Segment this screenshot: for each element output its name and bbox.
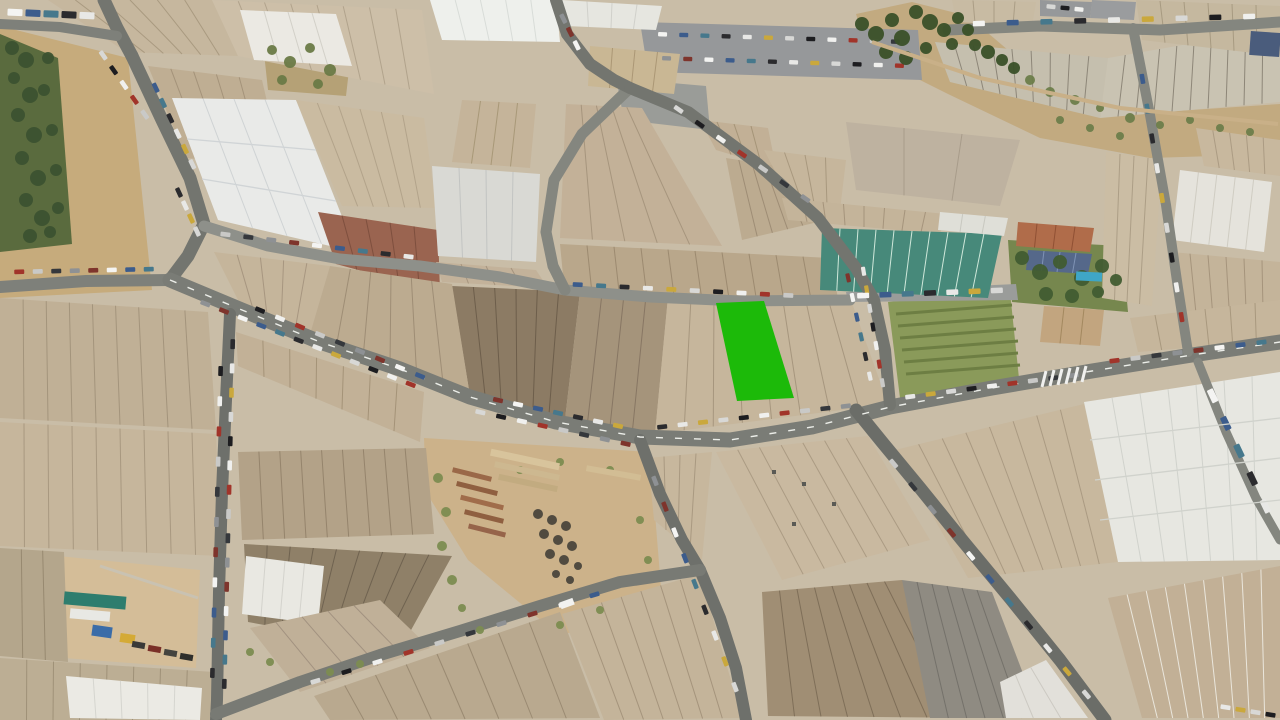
- ravine-trees: [996, 54, 1008, 66]
- house-roof: [1040, 306, 1104, 346]
- tire-piles: [552, 570, 560, 578]
- parking-row: [658, 32, 667, 37]
- parking-row: [874, 63, 883, 68]
- parked-cars: [212, 607, 217, 617]
- parked-cars: [175, 187, 183, 198]
- garden-trees: [1095, 259, 1109, 273]
- yard-weeds: [447, 575, 457, 585]
- parked-cars: [223, 630, 228, 640]
- junction-apron-ne: [1090, 0, 1136, 20]
- hillside-trees: [30, 170, 46, 186]
- yard-weeds: [437, 541, 447, 551]
- parked-cars: [226, 509, 231, 519]
- parked-cars: [51, 269, 61, 274]
- tire-piles: [539, 529, 549, 539]
- yard-weeds: [556, 621, 564, 629]
- parked-trucks: [25, 9, 40, 17]
- tire-piles: [553, 535, 563, 545]
- parked-cars: [666, 287, 676, 292]
- ravine-scrub: [1116, 132, 1124, 140]
- parked-cars: [225, 533, 230, 543]
- ravine-trees: [920, 42, 932, 54]
- parking-row: [747, 59, 756, 64]
- warehouse-roof-flat: [846, 122, 1020, 206]
- garden-trees: [1032, 264, 1048, 280]
- parked-cars: [1074, 7, 1083, 12]
- hillside-trees: [44, 226, 56, 238]
- warehouse-roof-seam: [316, 358, 317, 399]
- parked-vans: [991, 287, 1003, 293]
- yard-weeds: [441, 507, 451, 517]
- parked-cars: [217, 426, 222, 436]
- parked-trucks: [1074, 18, 1086, 24]
- scrub-bushes: [284, 56, 296, 68]
- hillside-trees: [22, 87, 38, 103]
- parked-cars: [212, 577, 217, 587]
- hillside-trees: [19, 193, 33, 207]
- parked-cars: [229, 388, 234, 398]
- solar-array: [1249, 31, 1280, 57]
- parking-row: [679, 33, 688, 38]
- parked-cars: [619, 284, 629, 289]
- parked-cars: [222, 679, 227, 689]
- parked-cars: [230, 339, 235, 349]
- parked-trucks: [1108, 17, 1120, 23]
- yard-weeds: [476, 626, 484, 634]
- parked-cars: [214, 517, 219, 527]
- parked-trucks: [1243, 14, 1255, 20]
- ravine-trees: [952, 12, 964, 24]
- ravine-trees: [969, 39, 981, 51]
- street: [948, 22, 1280, 30]
- tire-piles: [566, 576, 574, 584]
- parked-cars: [760, 292, 770, 297]
- parked-cars: [713, 289, 723, 294]
- parked-cars: [783, 293, 793, 298]
- parked-cars: [1046, 4, 1055, 9]
- parked-cars: [227, 460, 232, 470]
- roadside-weeds: [356, 660, 364, 668]
- parked-trucks: [1209, 14, 1221, 20]
- parked-trucks: [79, 12, 94, 20]
- ravine-trees: [894, 30, 910, 46]
- parked-cars: [230, 363, 235, 373]
- scrub-bushes: [313, 79, 323, 89]
- parked-cars: [107, 268, 117, 273]
- parked-vans: [857, 293, 869, 299]
- roadside-weeds: [246, 648, 254, 656]
- parked-cars: [475, 409, 486, 416]
- parking-row: [853, 62, 862, 67]
- warehouse-roof-white-grid: [1084, 372, 1280, 562]
- tire-piles: [533, 509, 543, 519]
- hillside-trees: [34, 210, 50, 226]
- parked-trucks: [1142, 16, 1154, 22]
- parked-cars: [228, 412, 233, 422]
- ravine-trees: [946, 38, 958, 50]
- hillside-trees: [50, 164, 62, 176]
- parking-row: [662, 56, 671, 61]
- parking-row: [785, 36, 794, 41]
- tire-piles: [547, 515, 557, 525]
- parked-trucks: [1040, 19, 1052, 25]
- ravine-trees: [868, 26, 884, 42]
- parked-cars: [144, 267, 154, 272]
- hillside-trees: [23, 229, 37, 243]
- parking-row: [849, 38, 858, 43]
- parcel-block-mid: [564, 292, 668, 434]
- parking-row: [700, 33, 709, 38]
- parked-cars: [228, 436, 233, 446]
- parked-vans: [968, 288, 980, 294]
- parked-cars: [14, 269, 24, 274]
- garden-trees: [1053, 255, 1067, 269]
- scrub-bushes: [305, 43, 315, 53]
- hillside-trees: [52, 202, 64, 214]
- parking-row: [827, 37, 836, 42]
- tire-piles: [567, 541, 577, 551]
- ravine-scrub: [1025, 75, 1035, 85]
- parked-cars: [218, 366, 223, 376]
- parked-trucks: [43, 10, 58, 18]
- parked-cars: [222, 655, 227, 665]
- street: [0, 280, 170, 287]
- parked-cars: [596, 283, 606, 288]
- yard-weeds: [458, 604, 466, 612]
- parked-cars: [125, 267, 135, 272]
- parked-cars: [140, 109, 150, 120]
- warehouse-roof-seam: [53, 662, 54, 720]
- ravine-scrub: [1056, 116, 1064, 124]
- hillside-trees: [26, 127, 42, 143]
- warehouse-roof-white: [1172, 170, 1272, 252]
- parked-cars: [88, 268, 98, 273]
- ravine-scrub: [1246, 128, 1254, 136]
- parked-cars: [213, 547, 218, 557]
- parking-row: [831, 61, 840, 66]
- ravine-trees: [855, 17, 869, 31]
- parking-row: [764, 35, 773, 40]
- yard-weeds: [433, 473, 443, 483]
- ac-unit: [772, 470, 776, 474]
- scrub-bushes: [267, 45, 277, 55]
- parked-cars: [224, 582, 229, 592]
- garden-trees: [1065, 289, 1079, 303]
- parked-vans: [879, 292, 891, 298]
- garden-trees: [1015, 251, 1029, 265]
- roadside-weeds: [266, 658, 274, 666]
- yard-weeds: [636, 516, 644, 524]
- tire-piles: [574, 562, 582, 570]
- ravine-trees: [937, 23, 951, 37]
- satellite-image: [0, 0, 1280, 720]
- hillside-trees: [42, 52, 54, 64]
- parking-row: [806, 37, 815, 42]
- parked-cars: [211, 638, 216, 648]
- warehouse-roof: [0, 422, 220, 556]
- garden-trees: [1110, 274, 1122, 286]
- ravine-trees: [1008, 62, 1020, 74]
- parking-row: [810, 61, 819, 66]
- ravine-trees: [885, 13, 899, 27]
- ac-unit: [802, 482, 806, 486]
- hillside-trees: [46, 124, 58, 136]
- tire-piles: [561, 521, 571, 531]
- ac-unit: [832, 502, 836, 506]
- garden-trees: [1092, 286, 1104, 298]
- ac-unit: [792, 522, 796, 526]
- hillside-trees: [8, 72, 20, 84]
- parked-cars: [210, 668, 215, 678]
- roadside-weeds: [326, 668, 334, 676]
- parked-cars: [33, 269, 43, 274]
- parked-cars: [643, 286, 653, 291]
- ravine-scrub: [1086, 124, 1094, 132]
- hillside-trees: [15, 151, 29, 165]
- parked-vans: [946, 289, 958, 295]
- parked-cars: [215, 487, 220, 497]
- ravine-scrub: [1156, 121, 1164, 129]
- warehouse-roof: [238, 448, 434, 540]
- parking-row: [768, 59, 777, 64]
- hillside-trees: [18, 52, 34, 68]
- tire-piles: [559, 555, 569, 565]
- hillside-trees: [38, 84, 50, 96]
- warehouse-roof-striped: [1108, 566, 1280, 718]
- parked-trucks: [1175, 15, 1187, 21]
- parking-row: [704, 57, 713, 62]
- parked-trucks: [61, 11, 76, 19]
- parking-row: [722, 34, 731, 39]
- swimming-pool: [1076, 271, 1102, 281]
- parked-cars: [217, 396, 222, 406]
- parked-cars: [70, 268, 80, 273]
- ravine-trees: [981, 45, 995, 59]
- parked-vans: [924, 290, 936, 296]
- ravine-scrub: [1125, 113, 1135, 123]
- parked-cars: [573, 282, 583, 287]
- hillside-trees: [11, 108, 25, 122]
- ravine-scrub: [1216, 124, 1224, 132]
- hillside-trees: [5, 41, 19, 55]
- tire-piles: [545, 549, 555, 559]
- warehouse-roof-white: [430, 0, 560, 42]
- ravine-trees: [922, 14, 938, 30]
- parked-cars: [187, 213, 195, 224]
- parked-trucks: [7, 9, 22, 17]
- parked-vans: [902, 291, 914, 297]
- parking-row: [789, 60, 798, 65]
- ravine-trees: [962, 24, 974, 36]
- scrub-bushes: [324, 64, 336, 76]
- parked-cars: [227, 485, 232, 495]
- yard-weeds: [596, 606, 604, 614]
- garden-trees: [1039, 287, 1053, 301]
- warehouse-roof: [0, 298, 216, 430]
- parked-cars: [690, 288, 700, 293]
- parked-cars: [736, 290, 746, 295]
- parking-row: [683, 57, 692, 62]
- aerial-map-canvas[interactable]: [0, 0, 1280, 720]
- parked-cars: [216, 457, 221, 467]
- parked-trucks: [1007, 20, 1019, 26]
- warehouse-roof: [452, 100, 536, 168]
- parked-cars: [181, 200, 189, 211]
- parked-trucks: [973, 21, 985, 27]
- warehouse-roof: [0, 548, 68, 662]
- parked-cars: [1060, 5, 1069, 10]
- scrub-bushes: [277, 75, 287, 85]
- yard-weeds: [644, 556, 652, 564]
- parked-cars: [224, 606, 229, 616]
- ravine-trees: [909, 5, 923, 19]
- parked-cars: [225, 557, 230, 567]
- parking-row: [726, 58, 735, 63]
- parking-row: [743, 35, 752, 40]
